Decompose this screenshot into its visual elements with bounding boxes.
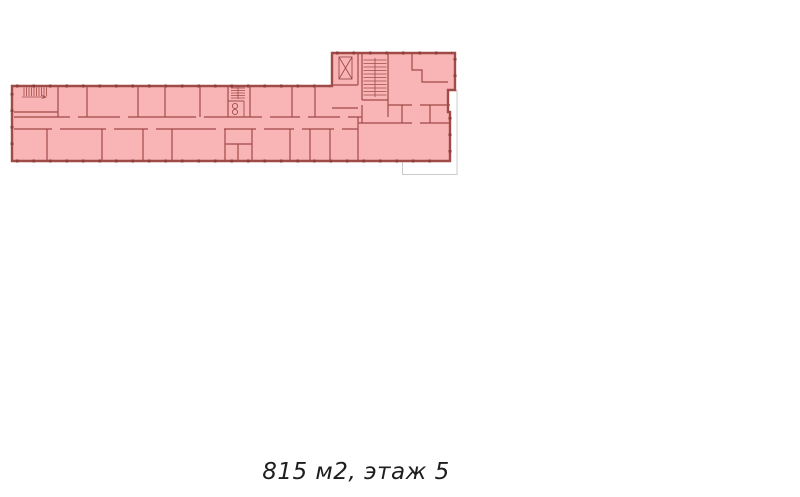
staircase-wing-icon: [364, 58, 387, 97]
floor-plan-page: 815 м2, этаж 5: [0, 0, 800, 497]
floor-plan: [0, 0, 800, 497]
plan-caption: 815 м2, этаж 5: [0, 459, 712, 485]
staircase-wing-treads: [364, 58, 387, 97]
